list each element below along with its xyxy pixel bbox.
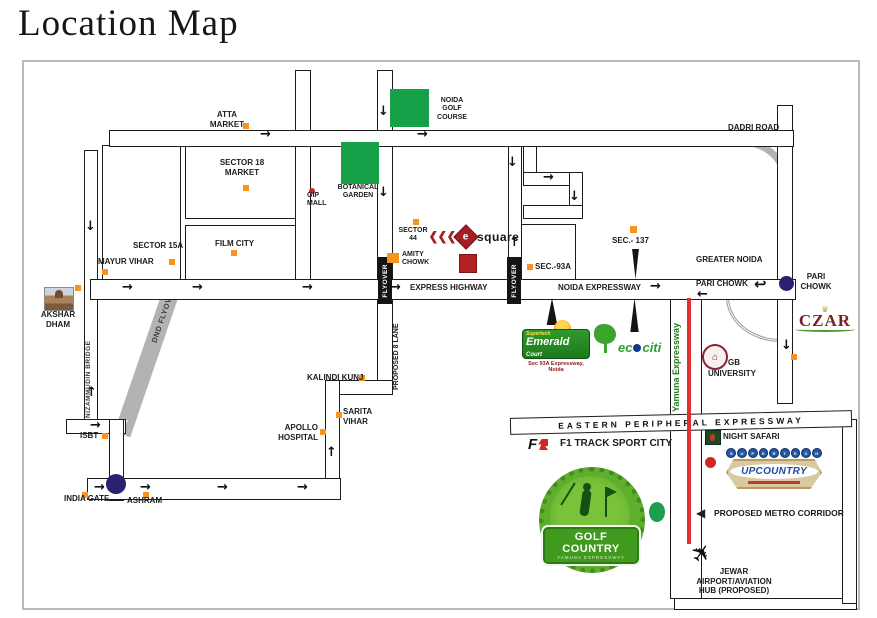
label-noida-golf-course: NOIDA GOLF COURSE (430, 97, 474, 122)
upcountry-bulb: R (769, 448, 779, 458)
label-pari-chowk-junction: PARI CHOWK (796, 272, 836, 291)
upcountry-bulb: E (791, 448, 801, 458)
sector15a-marker (169, 259, 175, 265)
location-map: DND FLYOVER ↑ (22, 60, 860, 610)
ecociti-prefix: ec (618, 341, 632, 354)
sarita-vihar-marker (336, 412, 342, 418)
pari-chowk-junction-circle (779, 276, 794, 291)
label-jewar-airport: JEWAR AIRPORT/AVIATION HUB (PROPOSED) (676, 567, 792, 596)
label-apollo-hospital: APOLLO HOSPITAL (272, 423, 318, 442)
golf-country-tagline: YAMUNA EXPRESSWAY (545, 555, 637, 560)
arrow-right-icon: → (122, 281, 133, 294)
arrow-right-icon: → (650, 280, 661, 293)
label-pari-chowk-road: PARI CHOWK (696, 279, 748, 289)
globe-icon (633, 344, 641, 352)
ecociti-logo: ec citi (594, 324, 661, 354)
road-apollo-vertical (325, 380, 340, 482)
arrow-left-icon: ← (697, 288, 708, 301)
apollo-hospital-marker (320, 429, 326, 435)
label-dadri-road: DADRI ROAD (728, 123, 779, 133)
metro-corridor-line (687, 298, 691, 544)
ecociti-suffix: citi (642, 341, 661, 354)
block-film-city (185, 225, 304, 281)
label-express-highway: EXPRESS HIGHWAY (410, 283, 488, 293)
upcountry-bulbs: SUPERTECH (726, 448, 822, 458)
golf-country-name: GOLF COUNTRY (545, 531, 637, 555)
upcountry-site-dot (705, 457, 716, 468)
label-night-safari: NIGHT SAFARI (723, 432, 779, 442)
golf-country-logo: GOLF COUNTRY YAMUNA EXPRESSWAY (537, 467, 641, 579)
road-gip-upper (295, 70, 311, 132)
upcountry-bulb: S (726, 448, 736, 458)
amity-chowk-marker (387, 253, 399, 263)
road-bottom-right (674, 598, 857, 610)
block-sector18 (185, 145, 304, 219)
metro-arrow-icon: ◀ (696, 506, 705, 520)
night-safari-icon (705, 430, 721, 445)
golf-country-banner: GOLF COUNTRY YAMUNA EXPRESSWAY (543, 527, 639, 564)
proposed-8-lane-label: PROPOSED 8 LANE (393, 300, 400, 390)
u-turn-arrow-icon: ↩ (754, 277, 767, 292)
page-title: Location Map (18, 2, 239, 45)
film-city-marker (231, 250, 237, 256)
arrow-right-icon: → (297, 481, 308, 494)
isbt-marker (102, 433, 108, 439)
pari-chowk-interchange (726, 297, 781, 342)
czar-name: CZAR (795, 312, 855, 329)
road-pari-vertical (777, 145, 793, 404)
upcountry-bulb: E (759, 448, 769, 458)
emerald-suffix: Court (526, 352, 542, 358)
dome-icon: ⌂ (712, 352, 718, 363)
upcountry-bulb: P (748, 448, 758, 458)
arrow-up-icon: ↑ (326, 446, 337, 459)
mayur-vihar-marker (102, 269, 108, 275)
akshar-dham-marker (75, 285, 81, 291)
label-akshar-dham: AKSHAR DHAM (32, 310, 84, 329)
road-right-edge-vertical (842, 419, 857, 604)
label-sector44: SECTOR 44 (395, 227, 431, 244)
czar-marker (791, 354, 797, 360)
label-proposed-metro: PROPOSED METRO CORRIDOR (714, 508, 844, 518)
esquare-building-marker (459, 254, 477, 273)
animal-icon (710, 434, 715, 441)
flag-icon (607, 487, 617, 497)
gb-university-logo: ⌂ (702, 344, 728, 370)
upcountry-name: UPCOUNTRY (730, 464, 818, 479)
flyover-label: FLYOVER (382, 264, 389, 298)
label-greater-noida: GREATER NOIDA (696, 255, 763, 265)
location-map-page: Location Map DND FLYOVER ↑ (0, 0, 877, 618)
sec137-pointer-spire (631, 249, 640, 279)
arrow-right-icon: → (192, 281, 203, 294)
label-india-gate: INDIA GATE (64, 494, 109, 504)
label-sector18-market: SECTOR 18 MARKET (212, 158, 272, 177)
esquare-logo: e square (430, 228, 519, 246)
label-gip-mall: GIP MALL (307, 192, 326, 209)
upcountry-bulb: T (780, 448, 790, 458)
sec137-marker (630, 226, 637, 233)
f1-letter: F (528, 437, 537, 452)
flyover-label: FLYOVER (511, 264, 518, 298)
botanical-garden-patch (341, 142, 379, 184)
upcountry-sign: UPCOUNTRY (726, 459, 822, 489)
label-ashram: ASHRAM (127, 496, 162, 506)
label-atta-market: ATTA MARKET (204, 110, 250, 129)
label-film-city: FILM CITY (215, 239, 254, 249)
golf-country-site-dot (649, 502, 665, 522)
esquare-chevron-icon (439, 231, 446, 244)
sec93a-marker (527, 264, 533, 270)
block-sec93a (520, 224, 576, 281)
f1-logo: F (528, 437, 548, 452)
emerald-address: Sec 93A Expressway, Noida (522, 361, 590, 373)
road-proposed-8-lane (377, 298, 393, 392)
road-hook-h2 (523, 205, 583, 219)
arrow-right-icon: → (390, 281, 401, 294)
flyover-band-right: FLYOVER (507, 257, 521, 304)
emerald-court-logo: Supertech Emerald Court Sec 93A Expressw… (522, 329, 590, 373)
arrow-right-icon: → (94, 481, 105, 494)
upcountry-bulb: C (801, 448, 811, 458)
arrow-right-icon: → (217, 481, 228, 494)
esquare-e: e (463, 232, 469, 243)
label-botanical-garden: BOTANICAL GARDEN (330, 184, 386, 201)
nizammudin-bridge-label: NIZAMMUDIN BRIDGE (85, 290, 92, 418)
arrow-down-icon: ↓ (569, 190, 580, 203)
label-sec137: SEC.- 137 (612, 236, 649, 246)
tree-icon (594, 324, 618, 354)
label-amity-chowk: AMITY CHOWK (402, 251, 429, 268)
label-kalindi-kunj: KALINDI KUNJ (307, 373, 363, 383)
arrow-down-icon: ↓ (781, 339, 792, 352)
sector18-marker (243, 185, 249, 191)
dnd-flyover-band: DND FLYOVER ↑ (114, 279, 183, 438)
label-sec93a: SEC.-93A (535, 262, 571, 272)
arrow-right-icon: → (543, 171, 554, 184)
india-gate-junction-circle (106, 474, 126, 494)
czar-logo: ♛ CZAR (795, 308, 855, 332)
akshar-dham-image (44, 287, 74, 311)
upcountry-logo: SUPERTECH UPCOUNTRY (726, 448, 822, 489)
arrow-right-icon: → (260, 128, 271, 141)
temple-dome-icon (55, 290, 63, 298)
emerald-name: Emerald (526, 336, 569, 348)
road-gip-vertical (295, 145, 311, 281)
sector44-marker (413, 219, 419, 225)
label-gb: GB (728, 358, 740, 368)
arrow-down-icon: ↓ (507, 156, 518, 169)
label-sector15a: SECTOR 15A (133, 241, 183, 251)
label-noida-expressway: NOIDA EXPRESSWAY (558, 283, 641, 293)
noida-golf-course-patch (390, 89, 429, 127)
label-isbt: ISBT (80, 431, 98, 441)
yamuna-expressway-label: Yamuna Expressway (671, 304, 681, 412)
esquare-diamond-icon: e (453, 224, 478, 249)
label-sarita-vihar: SARITA VIHAR (343, 407, 372, 426)
upcountry-bulb: U (737, 448, 747, 458)
label-f1-track: F1 TRACK SPORT CITY (560, 438, 672, 450)
arrow-down-icon: ↓ (85, 220, 96, 233)
road-top (109, 130, 794, 147)
arrow-right-icon: → (417, 128, 428, 141)
label-gb-university: UNIVERSITY (692, 369, 772, 379)
esquare-chevron-icon (430, 231, 437, 244)
arrow-right-icon: → (302, 281, 313, 294)
label-mayur-vihar: MAYUR VIHAR (98, 257, 154, 267)
arrow-down-icon: ↓ (378, 105, 389, 118)
f1-red-one-icon (538, 439, 548, 450)
upcountry-tagline-bar (748, 481, 801, 484)
upcountry-bulb: H (812, 448, 822, 458)
esquare-name: square (477, 230, 519, 244)
